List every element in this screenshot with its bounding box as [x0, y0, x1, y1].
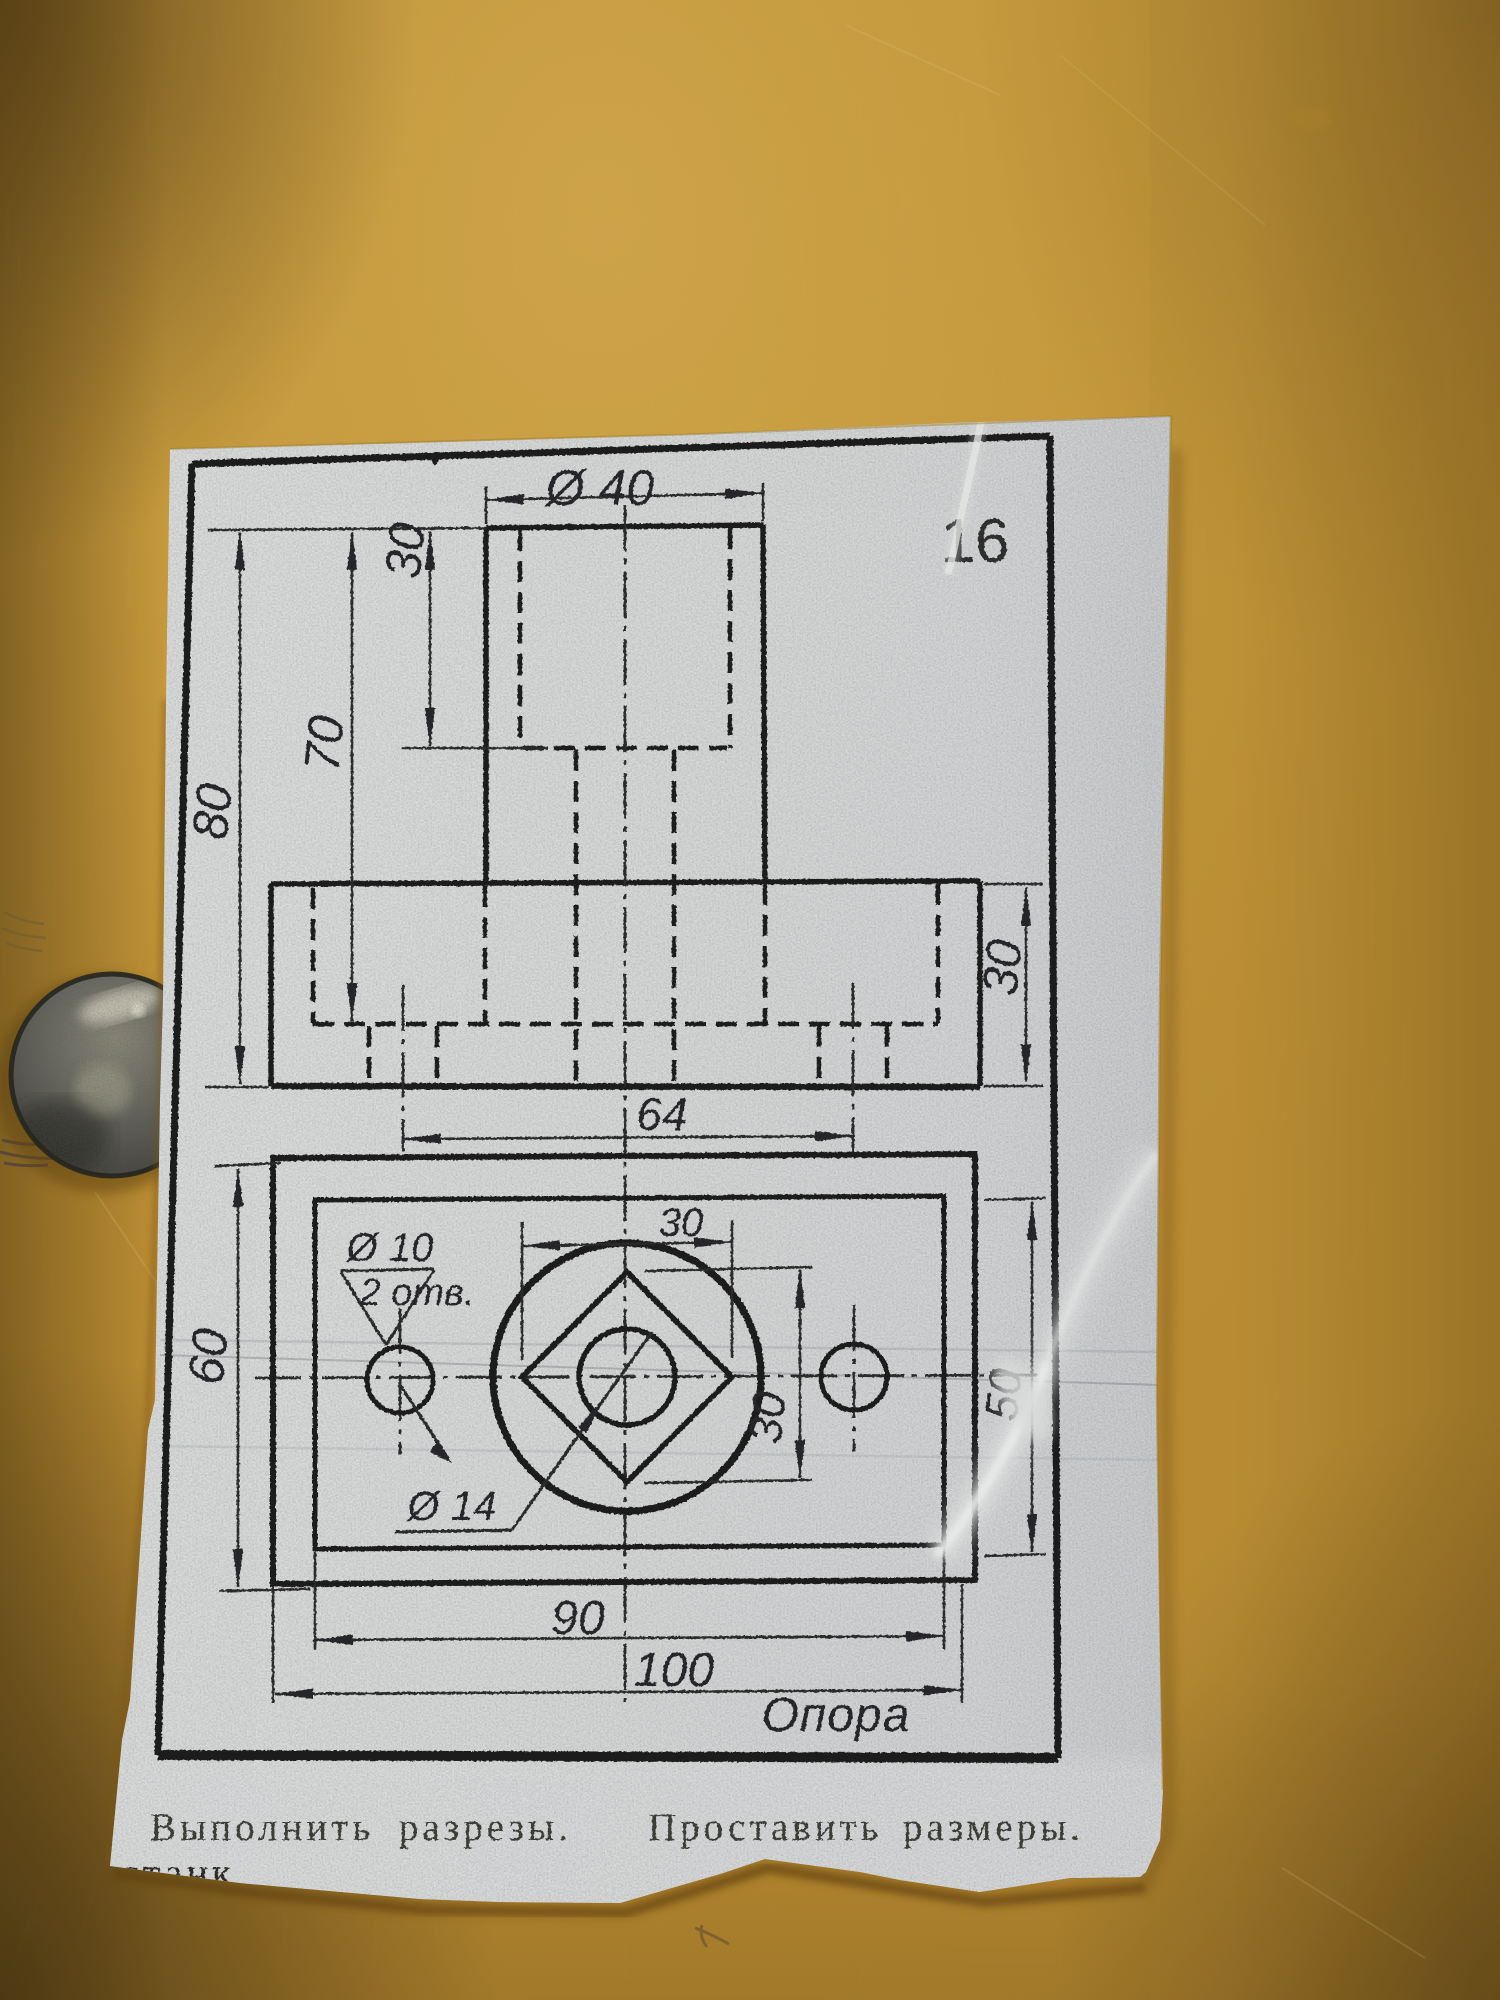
svg-text:Ø 10: Ø 10 — [345, 1226, 434, 1270]
svg-text:Опора: Опора — [762, 1689, 911, 1742]
svg-text:100: 100 — [634, 1644, 714, 1697]
svg-text:30: 30 — [739, 1389, 796, 1446]
svg-text:Ø 14: Ø 14 — [406, 1483, 497, 1529]
svg-text:90: 90 — [551, 1592, 605, 1645]
svg-text:64: 64 — [636, 1088, 687, 1140]
svg-text:70: 70 — [293, 713, 355, 774]
svg-text:30: 30 — [374, 520, 436, 581]
svg-text:Ø 40: Ø 40 — [544, 460, 655, 516]
svg-text:80: 80 — [181, 781, 243, 842]
svg-text:2 отв.: 2 отв. — [359, 1272, 475, 1314]
svg-text:60: 60 — [177, 1326, 239, 1387]
svg-text:30: 30 — [659, 1201, 704, 1245]
svg-text:30: 30 — [971, 937, 1033, 998]
